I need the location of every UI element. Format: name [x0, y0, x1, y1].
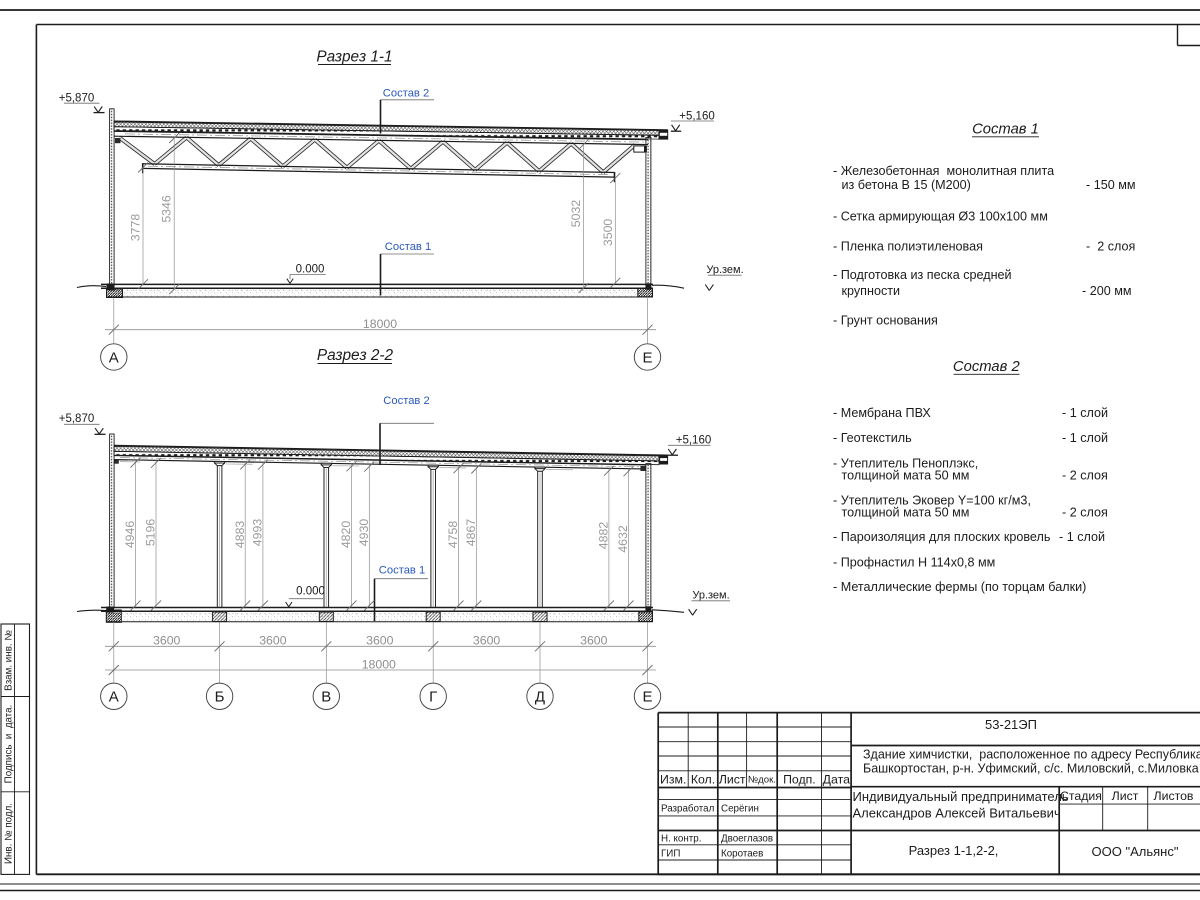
svg-text:Взам. инв. №: Взам. инв. №	[4, 630, 15, 691]
svg-text:Двоеглазов: Двоеглазов	[721, 834, 773, 845]
svg-text:4758: 4758	[446, 521, 460, 549]
svg-text:- 1 слой: - 1 слой	[1059, 530, 1105, 544]
svg-text:- Мембрана ПВХ: - Мембрана ПВХ	[833, 406, 931, 420]
svg-text:Состав 1: Состав 1	[385, 241, 431, 253]
svg-text:Подп.: Подп.	[783, 772, 816, 786]
svg-text:53-21ЭП: 53-21ЭП	[985, 717, 1037, 732]
svg-text:- Пароизоляция для плоских кро: - Пароизоляция для плоских кровель	[833, 530, 1051, 544]
svg-text:3778: 3778	[129, 214, 143, 242]
svg-text:Разработал: Разработал	[661, 804, 715, 815]
svg-text:4882: 4882	[597, 522, 611, 550]
svg-text:- 1 слой: - 1 слой	[1062, 431, 1108, 445]
svg-text:Индивидуальный предприниматель: Индивидуальный предприниматель	[853, 789, 1069, 804]
svg-text:- Профнастил Н 114х0,8 мм: - Профнастил Н 114х0,8 мм	[833, 555, 995, 569]
svg-text:из бетона В 15 (М200): из бетона В 15 (М200)	[842, 178, 971, 192]
svg-text:0.000: 0.000	[296, 263, 325, 275]
svg-text:3500: 3500	[601, 219, 615, 247]
svg-text:+5,870: +5,870	[59, 93, 95, 105]
svg-text:толщиной мата 50 мм: толщиной мата 50 мм	[842, 505, 970, 519]
svg-text:Листов: Листов	[1154, 789, 1194, 803]
svg-text:- 200 мм: - 200 мм	[1082, 284, 1132, 298]
svg-text:3600: 3600	[366, 634, 394, 648]
svg-text:ООО "Альянс": ООО "Альянс"	[1092, 844, 1179, 859]
svg-text:Лист: Лист	[1112, 789, 1139, 803]
svg-text:Подпись и дата.: Подпись и дата.	[4, 705, 15, 784]
svg-text:18000: 18000	[362, 657, 396, 671]
svg-text:ГИП: ГИП	[661, 848, 680, 859]
svg-text:Б: Б	[215, 689, 225, 706]
svg-text:Ур.зем.: Ур.зем.	[706, 264, 743, 276]
svg-text:Разрез 2-2: Разрез 2-2	[317, 347, 394, 364]
svg-text:- Геотекстиль: - Геотекстиль	[833, 431, 912, 445]
svg-text:5346: 5346	[160, 195, 174, 223]
svg-text:Серёгин: Серёгин	[721, 804, 759, 815]
svg-text:4632: 4632	[616, 525, 630, 553]
svg-text:№док.: №док.	[748, 775, 776, 786]
svg-text:Стадия: Стадия	[1060, 789, 1102, 803]
svg-text:- Железобетонная монолитная п: - Железобетонная монолитная плита	[833, 164, 1054, 178]
svg-text:Состав 1: Состав 1	[379, 564, 425, 576]
svg-text:- 2 слоя: - 2 слоя	[1086, 240, 1135, 254]
svg-text:0.000: 0.000	[296, 585, 325, 597]
svg-text:В: В	[321, 689, 331, 706]
svg-text:Александров Алексей Витальевич: Александров Алексей Витальевич	[853, 806, 1061, 821]
svg-text:4930: 4930	[357, 519, 371, 547]
svg-text:4883: 4883	[233, 521, 247, 549]
svg-text:Е: Е	[642, 689, 652, 706]
svg-text:Ур.зем.: Ур.зем.	[692, 590, 729, 602]
svg-text:- Грунт основания: - Грунт основания	[833, 313, 938, 327]
svg-text:Состав 2: Состав 2	[383, 88, 429, 100]
svg-text:3600: 3600	[259, 634, 287, 648]
svg-text:Состав 2: Состав 2	[953, 359, 1021, 375]
svg-text:Е: Е	[642, 349, 652, 366]
svg-text:4993: 4993	[251, 519, 265, 547]
svg-text:Кол.: Кол.	[691, 772, 715, 786]
svg-text:4820: 4820	[339, 521, 353, 549]
svg-text:- Пленка полиэтиленовая: - Пленка полиэтиленовая	[833, 240, 983, 254]
svg-text:- Подготовка из песка средней: - Подготовка из песка средней	[833, 268, 1012, 282]
svg-text:крупности: крупности	[842, 284, 901, 298]
svg-text:3600: 3600	[580, 634, 608, 648]
svg-text:Коротаев: Коротаев	[721, 848, 763, 859]
svg-text:Разрез 1-1: Разрез 1-1	[316, 49, 392, 66]
svg-text:18000: 18000	[363, 317, 397, 331]
svg-text:- Сетка армирующая Ø3 100х100: - Сетка армирующая Ø3 100х100 мм	[833, 209, 1048, 223]
svg-text:толщиной мата 50 мм: толщиной мата 50 мм	[842, 469, 970, 483]
svg-text:Н. контр.: Н. контр.	[661, 834, 701, 845]
svg-text:А: А	[109, 349, 119, 366]
svg-text:3600: 3600	[153, 634, 181, 648]
svg-text:+5,160: +5,160	[676, 435, 712, 447]
svg-text:Состав 2: Состав 2	[383, 395, 429, 407]
svg-text:3600: 3600	[473, 634, 501, 648]
svg-text:5196: 5196	[144, 519, 158, 547]
svg-text:- 1 слой: - 1 слой	[1062, 406, 1108, 420]
svg-text:Лист: Лист	[719, 772, 746, 786]
svg-text:Г: Г	[429, 689, 437, 706]
svg-text:А: А	[109, 689, 119, 706]
svg-text:- 2 слоя: - 2 слоя	[1062, 505, 1108, 519]
svg-text:Дата: Дата	[823, 772, 850, 786]
svg-text:- Металлические фермы (по торц: - Металлические фермы (по торцам балки)	[833, 580, 1086, 594]
svg-text:Д: Д	[535, 689, 545, 706]
svg-text:Разрез 1-1,2-2,: Разрез 1-1,2-2,	[909, 843, 999, 858]
svg-text:Состав 1: Состав 1	[972, 122, 1039, 138]
svg-text:5032: 5032	[569, 200, 583, 228]
svg-text:4867: 4867	[464, 519, 478, 547]
svg-text:4946: 4946	[123, 521, 137, 549]
svg-text:Башкортостан, р-н. Уфимский, с: Башкортостан, р-н. Уфимский, с/с. Миловс…	[863, 761, 1199, 775]
svg-text:Инв. № подл.: Инв. № подл.	[4, 803, 15, 864]
svg-text:- 150 мм: - 150 мм	[1086, 178, 1136, 192]
svg-text:Изм.: Изм.	[660, 772, 686, 786]
svg-text:Здание химчистки, расположенн: Здание химчистки, расположенное по адрес…	[863, 747, 1200, 761]
svg-text:+5,870: +5,870	[59, 413, 95, 425]
svg-text:- 2 слоя: - 2 слоя	[1062, 469, 1108, 483]
svg-text:+5,160: +5,160	[679, 110, 715, 122]
